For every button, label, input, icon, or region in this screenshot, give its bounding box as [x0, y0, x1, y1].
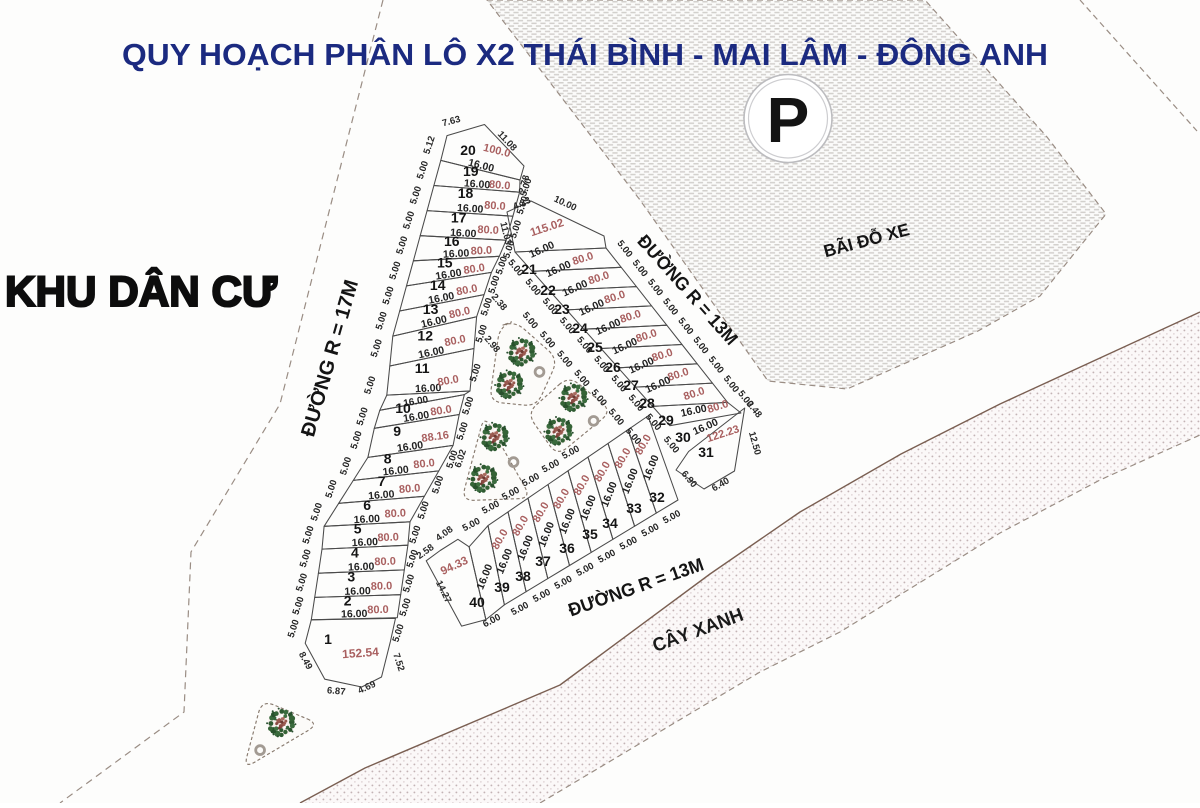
svg-text:16.00: 16.00: [341, 608, 368, 621]
svg-text:36: 36: [559, 540, 575, 556]
svg-text:16.00: 16.00: [450, 227, 477, 240]
svg-text:80.0: 80.0: [477, 224, 499, 237]
svg-text:80.0: 80.0: [399, 482, 421, 496]
svg-text:35: 35: [582, 526, 598, 542]
svg-text:16.00: 16.00: [344, 585, 371, 598]
svg-text:20: 20: [460, 142, 476, 158]
svg-text:16.00: 16.00: [368, 488, 395, 502]
svg-text:16.00: 16.00: [443, 247, 470, 260]
svg-text:9: 9: [393, 423, 401, 439]
svg-text:80.0: 80.0: [384, 507, 406, 520]
svg-text:152.54: 152.54: [342, 645, 380, 662]
svg-text:11: 11: [415, 360, 430, 376]
svg-text:40: 40: [469, 594, 485, 610]
svg-text:1: 1: [324, 631, 332, 647]
svg-text:80.0: 80.0: [484, 200, 506, 213]
svg-text:KHU DÂN CƯ: KHU DÂN CƯ: [5, 267, 277, 316]
svg-text:80.0: 80.0: [367, 604, 389, 617]
svg-text:80.0: 80.0: [489, 179, 511, 193]
svg-text:16.00: 16.00: [353, 513, 380, 526]
svg-text:80.0: 80.0: [470, 245, 492, 258]
svg-text:33: 33: [626, 500, 642, 516]
svg-text:37: 37: [535, 553, 551, 569]
svg-text:16.00: 16.00: [457, 202, 484, 216]
svg-text:31: 31: [698, 444, 714, 460]
svg-text:39: 39: [494, 579, 510, 595]
svg-text:80.0: 80.0: [374, 555, 396, 568]
svg-text:38: 38: [515, 568, 531, 584]
svg-text:8: 8: [384, 450, 392, 466]
svg-text:16.00: 16.00: [348, 561, 375, 574]
svg-text:P: P: [767, 84, 810, 156]
svg-text:80.0: 80.0: [413, 457, 436, 471]
svg-text:16.00: 16.00: [351, 536, 378, 549]
svg-text:80.0: 80.0: [377, 531, 399, 544]
svg-text:34: 34: [602, 515, 618, 531]
svg-text:80.0: 80.0: [371, 580, 393, 593]
svg-text:16.00: 16.00: [463, 177, 490, 191]
svg-text:QUY HOẠCH PHÂN LÔ X2 THÁI BÌNH: QUY HOẠCH PHÂN LÔ X2 THÁI BÌNH - MAI LÂM…: [122, 36, 1048, 72]
svg-text:32: 32: [649, 489, 665, 505]
svg-text:6.87: 6.87: [327, 685, 346, 698]
